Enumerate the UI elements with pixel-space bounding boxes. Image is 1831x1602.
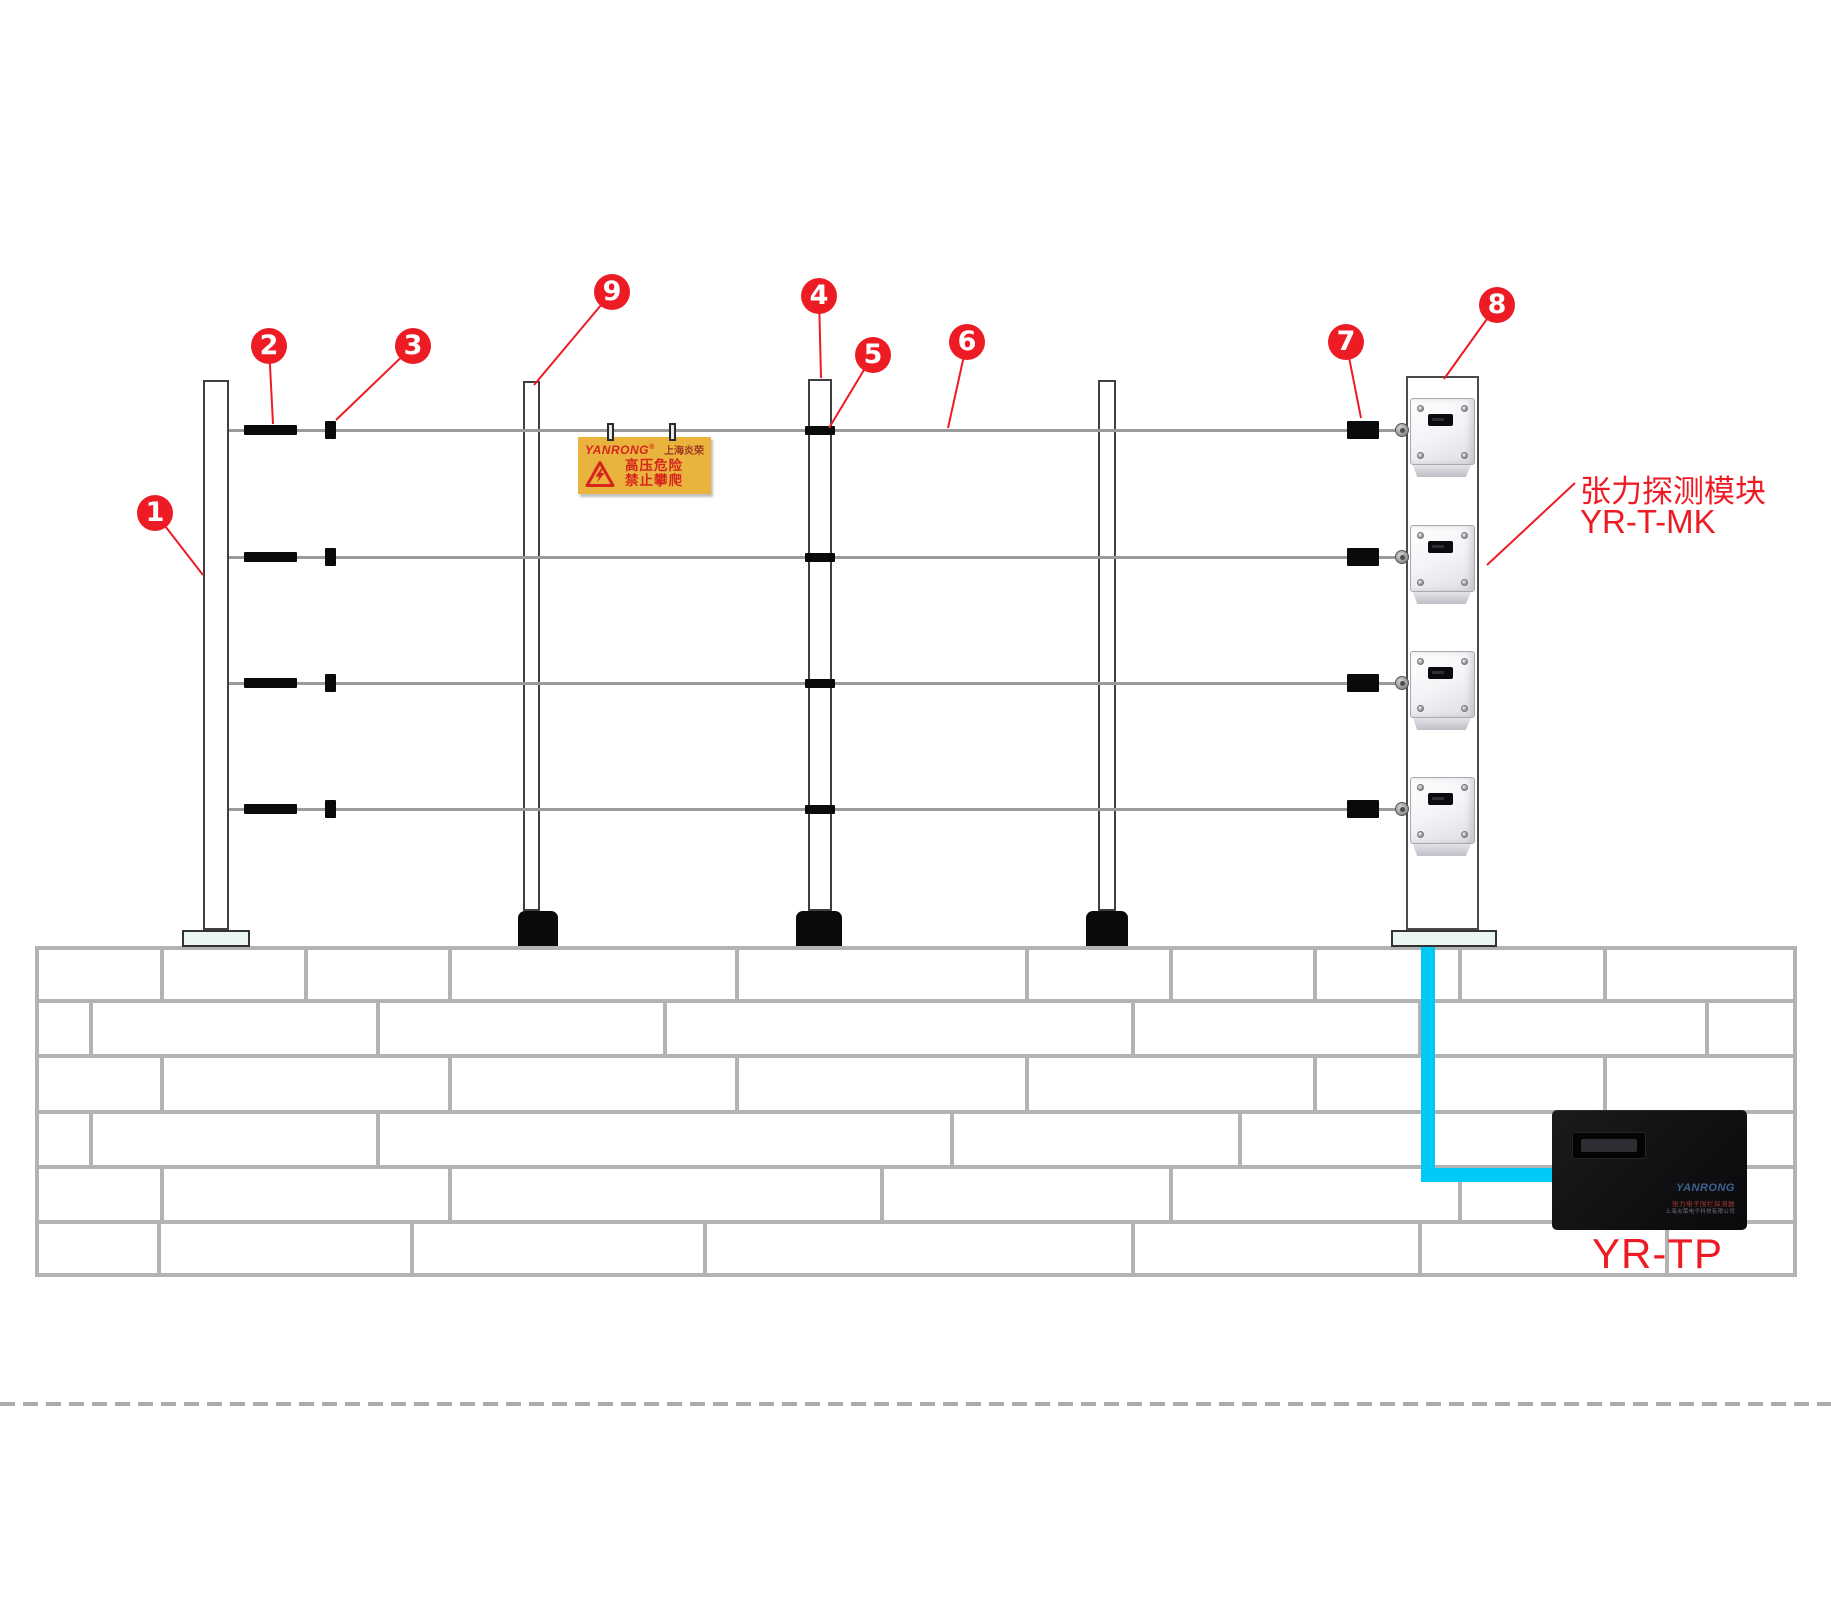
tension-module-4 xyxy=(1410,777,1475,844)
wall-brick-joint xyxy=(1169,1167,1173,1222)
wall-brick-joint xyxy=(1131,1001,1135,1056)
wall-mortar-line xyxy=(35,999,1797,1003)
wall-brick-joint xyxy=(1025,1056,1029,1111)
wall-brick-joint xyxy=(1418,1222,1422,1277)
wall-brick-joint xyxy=(735,1056,739,1111)
post-3-band-3 xyxy=(805,679,835,688)
post-1-base-plate xyxy=(182,930,250,947)
wire-2-insulator-bar xyxy=(244,552,297,562)
controller-label: YR-TP xyxy=(1592,1230,1723,1278)
wall-brick-joint xyxy=(89,1001,93,1056)
callout-7: 7 xyxy=(1328,324,1364,360)
wall-brick-joint xyxy=(1458,946,1462,1001)
module-2-wire-bolt xyxy=(1395,550,1409,564)
module-screw xyxy=(1461,532,1468,539)
sign-brand-logo: YANRONG® xyxy=(585,443,655,457)
post-3-band-4 xyxy=(805,805,835,814)
wall-brick-joint xyxy=(160,946,164,1001)
post-3-base xyxy=(796,911,842,946)
controller-company-line: 上海炎荣电子科技有限公司 xyxy=(1665,1207,1735,1215)
wall-brick-joint xyxy=(880,1167,884,1222)
wall-brick-joint xyxy=(304,946,308,1001)
module-screw xyxy=(1461,405,1468,412)
module-1-wire-bolt xyxy=(1395,423,1409,437)
post-3-band-1 xyxy=(805,426,835,435)
cable-horizontal xyxy=(1421,1168,1553,1182)
module-display xyxy=(1428,541,1453,553)
module-screw xyxy=(1461,831,1468,838)
tension-module-2-bottom xyxy=(1413,592,1471,604)
wall-mortar-line xyxy=(35,1220,1797,1224)
wall-mortar-line xyxy=(35,1054,1797,1058)
module-4-wire-bolt xyxy=(1395,802,1409,816)
wire-1-terminal-block xyxy=(1347,421,1379,439)
wall-brick-joint xyxy=(410,1222,414,1277)
callout-8: 8 xyxy=(1479,287,1515,323)
wire-1-insulator-bar xyxy=(244,425,297,435)
wall-brick-joint xyxy=(448,1167,452,1222)
fence-structure: 123945678 xyxy=(0,0,1831,1602)
module-screw xyxy=(1417,784,1424,791)
callout-6: 6 xyxy=(949,324,985,360)
module-display xyxy=(1428,414,1453,426)
callout-9: 9 xyxy=(594,274,630,310)
high-voltage-warning-sign: YANRONG® 上海炎荣 高压危险 禁止攀爬 xyxy=(578,437,711,494)
controller-display-slot xyxy=(1572,1132,1646,1159)
tension-module-label-model: YR-T-MK xyxy=(1580,503,1716,541)
module-screw xyxy=(1461,658,1468,665)
wall-brick-joint xyxy=(157,1222,161,1277)
wall-brick-joint xyxy=(448,1056,452,1111)
wall-brick-joint xyxy=(160,1167,164,1222)
callout-1: 1 xyxy=(137,495,173,531)
wall-brick-joint xyxy=(376,1112,380,1167)
module-screw xyxy=(1417,579,1424,586)
callout-5: 5 xyxy=(855,337,891,373)
wall-brick-joint xyxy=(376,1001,380,1056)
post-2-base xyxy=(518,911,558,946)
module-3-wire-bolt xyxy=(1395,676,1409,690)
module-display xyxy=(1428,793,1453,805)
fence-post-1 xyxy=(203,380,229,930)
wall-brick-joint xyxy=(160,1056,164,1111)
post-4-base xyxy=(1086,911,1128,946)
tension-module-1-bottom xyxy=(1413,465,1471,477)
wall-brick-joint xyxy=(448,946,452,1001)
tension-module-3 xyxy=(1410,651,1475,718)
fence-post-3 xyxy=(808,379,832,911)
sign-hook-left xyxy=(607,423,614,441)
wire-2-tensioner-block xyxy=(325,548,336,566)
controller-box: YANRONG 张力电子围栏探测器 上海炎荣电子科技有限公司 xyxy=(1552,1110,1747,1230)
tension-module-2 xyxy=(1410,525,1475,592)
wall-brick-joint xyxy=(1705,1001,1709,1056)
wall-brick-joint xyxy=(1603,1056,1607,1111)
tension-module-4-bottom xyxy=(1413,844,1471,856)
wall-brick-joint xyxy=(1313,1056,1317,1111)
callout-4: 4 xyxy=(801,278,837,314)
module-screw xyxy=(1417,705,1424,712)
dashed-ground-line xyxy=(0,1402,1831,1406)
module-screw xyxy=(1417,831,1424,838)
fence-diagram: 123945678 YANRONG® 上海炎荣 高压危险 禁止攀爬 YANRON… xyxy=(0,0,1831,1602)
cable-vertical xyxy=(1421,946,1435,1182)
module-screw xyxy=(1461,579,1468,586)
fence-post-2 xyxy=(523,381,540,911)
module-screw xyxy=(1461,784,1468,791)
wire-3-tensioner-block xyxy=(325,674,336,692)
callout-3: 3 xyxy=(395,328,431,364)
wall-brick-joint xyxy=(735,946,739,1001)
wire-4-terminal-block xyxy=(1347,800,1379,818)
wire-3-insulator-bar xyxy=(244,678,297,688)
module-screw xyxy=(1461,452,1468,459)
wire-4-tensioner-block xyxy=(325,800,336,818)
module-display xyxy=(1428,667,1453,679)
tension-module-1 xyxy=(1410,398,1475,465)
sign-hook-right xyxy=(669,423,676,441)
fence-post-4 xyxy=(1098,380,1116,911)
controller-logo: YANRONG xyxy=(1676,1182,1735,1194)
wire-4-insulator-bar xyxy=(244,804,297,814)
callout-2: 2 xyxy=(251,328,287,364)
wall-mortar-line xyxy=(35,1110,1797,1114)
wall-brick-joint xyxy=(1603,946,1607,1001)
wall-brick-joint xyxy=(1025,946,1029,1001)
module-screw xyxy=(1417,452,1424,459)
post-3-band-2 xyxy=(805,553,835,562)
wall-brick-joint xyxy=(1313,946,1317,1001)
wire-3-terminal-block xyxy=(1347,674,1379,692)
wall-brick-joint xyxy=(1238,1112,1242,1167)
post-5-base-plate xyxy=(1391,930,1497,947)
module-screw xyxy=(1461,705,1468,712)
sign-brand-cn: 上海炎荣 xyxy=(664,442,704,457)
module-screw xyxy=(1417,658,1424,665)
sign-warning-text: 高压危险 禁止攀爬 xyxy=(625,459,683,488)
wall-brick-joint xyxy=(950,1112,954,1167)
wall-brick-joint xyxy=(89,1112,93,1167)
module-screw xyxy=(1417,405,1424,412)
wall-brick-joint xyxy=(1169,946,1173,1001)
module-screw xyxy=(1417,532,1424,539)
wall-brick-joint xyxy=(703,1222,707,1277)
wire-2-terminal-block xyxy=(1347,548,1379,566)
wire-1-tensioner-block xyxy=(325,421,336,439)
wall-brick-joint xyxy=(1131,1222,1135,1277)
wall-brick-joint xyxy=(663,1001,667,1056)
high-voltage-triangle-icon xyxy=(585,460,615,488)
tension-module-3-bottom xyxy=(1413,718,1471,730)
